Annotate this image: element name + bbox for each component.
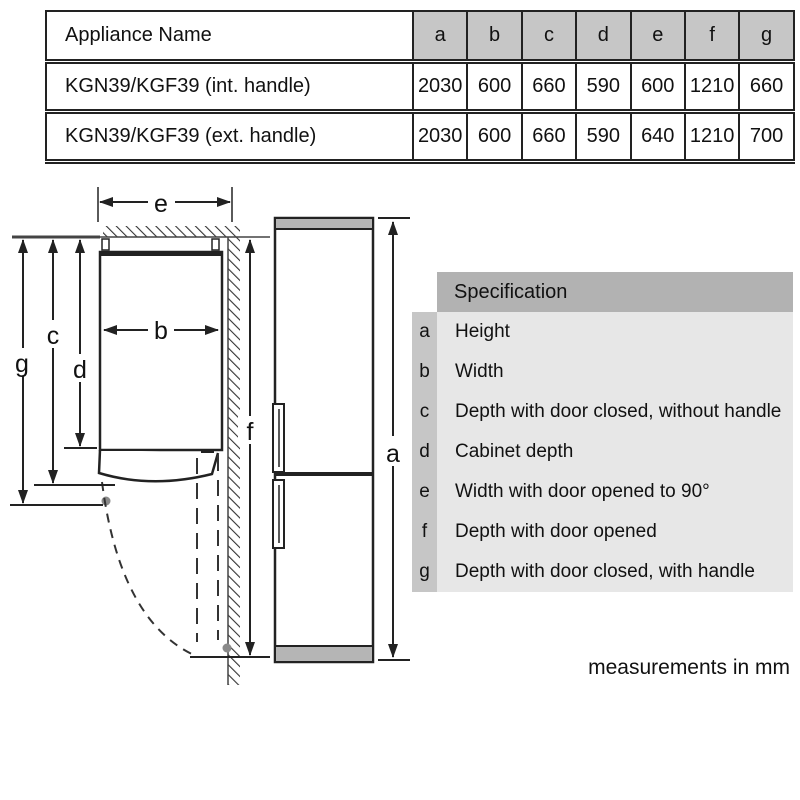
value-g: 700: [739, 111, 793, 161]
value-a: 2030: [413, 61, 467, 111]
spec-label: Cabinet depth: [437, 432, 793, 472]
spec-label: Width with door opened to 90°: [437, 472, 793, 512]
hinge-left: [102, 239, 109, 250]
f-label: f: [247, 418, 254, 446]
value-f: 1210: [685, 111, 739, 161]
col-f: f: [685, 11, 739, 61]
appliance-name: KGN39/KGF39 (ext. handle): [46, 111, 413, 161]
dimension-table: Appliance Name a b c d e f g KGN39/KGF39…: [45, 10, 795, 164]
b-label: b: [154, 317, 168, 345]
table-header-row: Appliance Name a b c d e f g: [46, 11, 794, 61]
e-label: e: [154, 190, 168, 218]
door-swing-arc: [102, 482, 196, 656]
col-c: c: [522, 11, 576, 61]
spec-key: d: [412, 432, 437, 472]
fridge-body: [275, 218, 373, 662]
spec-key: a: [412, 312, 437, 352]
table-row: KGN39/KGF39 (ext. handle) 2030 600 660 5…: [46, 111, 794, 161]
spec-row-c: c Depth with door closed, without handle: [412, 392, 793, 432]
value-b: 600: [467, 111, 521, 161]
table-row: KGN39/KGF39 (int. handle) 2030 600 660 5…: [46, 61, 794, 111]
spec-label: Height: [437, 312, 793, 352]
col-appliance-name: Appliance Name: [46, 11, 413, 61]
side-view: a: [273, 218, 410, 662]
value-c: 660: [522, 111, 576, 161]
appliance-dimension-sheet: Appliance Name a b c d e f g KGN39/KGF39…: [0, 0, 800, 800]
value-e: 600: [631, 61, 685, 111]
spec-row-g: g Depth with door closed, with handle: [412, 552, 793, 592]
specification-title: Specification: [437, 272, 793, 312]
value-b: 600: [467, 61, 521, 111]
door-closed-front: [99, 450, 218, 481]
spec-key: b: [412, 352, 437, 392]
value-c: 660: [522, 61, 576, 111]
col-e: e: [631, 11, 685, 61]
spec-label: Depth with door closed, with handle: [437, 552, 793, 592]
spec-key: c: [412, 392, 437, 432]
spec-key: f: [412, 512, 437, 552]
spec-label: Depth with door closed, without handle: [437, 392, 793, 432]
specification-panel: Specification a Height b Width c Depth w…: [412, 272, 793, 592]
spec-row-e: e Width with door opened to 90°: [412, 472, 793, 512]
top-view: e b g: [10, 187, 270, 685]
value-d: 590: [576, 111, 630, 161]
spec-row-b: b Width: [412, 352, 793, 392]
value-a: 2030: [413, 111, 467, 161]
value-d: 590: [576, 61, 630, 111]
col-a: a: [413, 11, 467, 61]
spec-key: e: [412, 472, 437, 512]
appliance-name: KGN39/KGF39 (int. handle): [46, 61, 413, 111]
spec-key: g: [412, 552, 437, 592]
c-label: c: [47, 322, 60, 350]
fridge-plinth: [275, 646, 373, 662]
wall-hatch-vertical: [228, 237, 240, 685]
d-label: d: [73, 356, 87, 384]
value-e: 640: [631, 111, 685, 161]
cabinet-outline: [100, 252, 222, 450]
value-g: 660: [739, 61, 793, 111]
col-d: d: [576, 11, 630, 61]
spec-row-d: d Cabinet depth: [412, 432, 793, 472]
a-label: a: [386, 440, 400, 468]
spec-row-f: f Depth with door opened: [412, 512, 793, 552]
hinge-right: [212, 239, 219, 250]
spec-label: Depth with door opened: [437, 512, 793, 552]
value-f: 1210: [685, 61, 739, 111]
spec-label: Width: [437, 352, 793, 392]
handle-dot-open: [223, 644, 232, 653]
col-b: b: [467, 11, 521, 61]
g-label: g: [15, 350, 29, 378]
wall-hatch-horizontal: [103, 226, 240, 237]
spec-row-a: a Height: [412, 312, 793, 352]
fridge-top-trim: [275, 218, 373, 229]
col-g: g: [739, 11, 793, 61]
